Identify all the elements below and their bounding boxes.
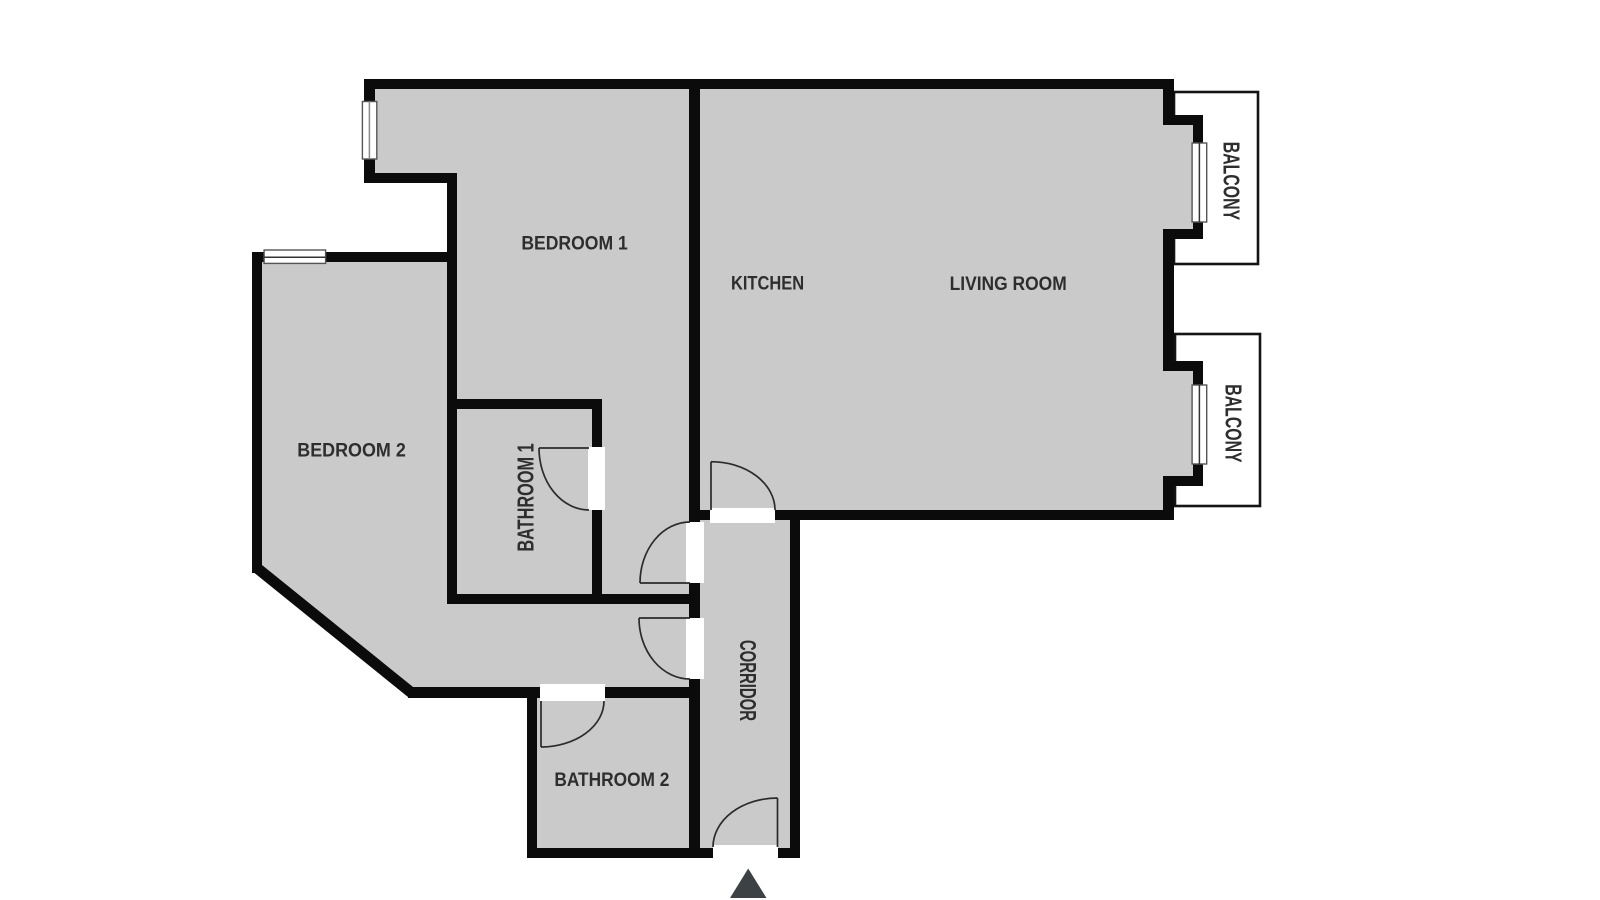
svg-text:CORRIDOR: CORRIDOR bbox=[734, 640, 760, 721]
svg-text:BEDROOM 1: BEDROOM 1 bbox=[521, 231, 627, 253]
svg-text:BEDROOM 2: BEDROOM 2 bbox=[297, 439, 406, 461]
svg-text:BATHROOM 2: BATHROOM 2 bbox=[554, 768, 669, 790]
svg-text:BALCONY: BALCONY bbox=[1218, 142, 1244, 220]
svg-text:KITCHEN: KITCHEN bbox=[731, 272, 804, 294]
svg-text:LIVING ROOM: LIVING ROOM bbox=[950, 272, 1067, 294]
svg-text:BATHROOM 1: BATHROOM 1 bbox=[514, 443, 539, 551]
svg-text:BALCONY: BALCONY bbox=[1220, 384, 1246, 462]
